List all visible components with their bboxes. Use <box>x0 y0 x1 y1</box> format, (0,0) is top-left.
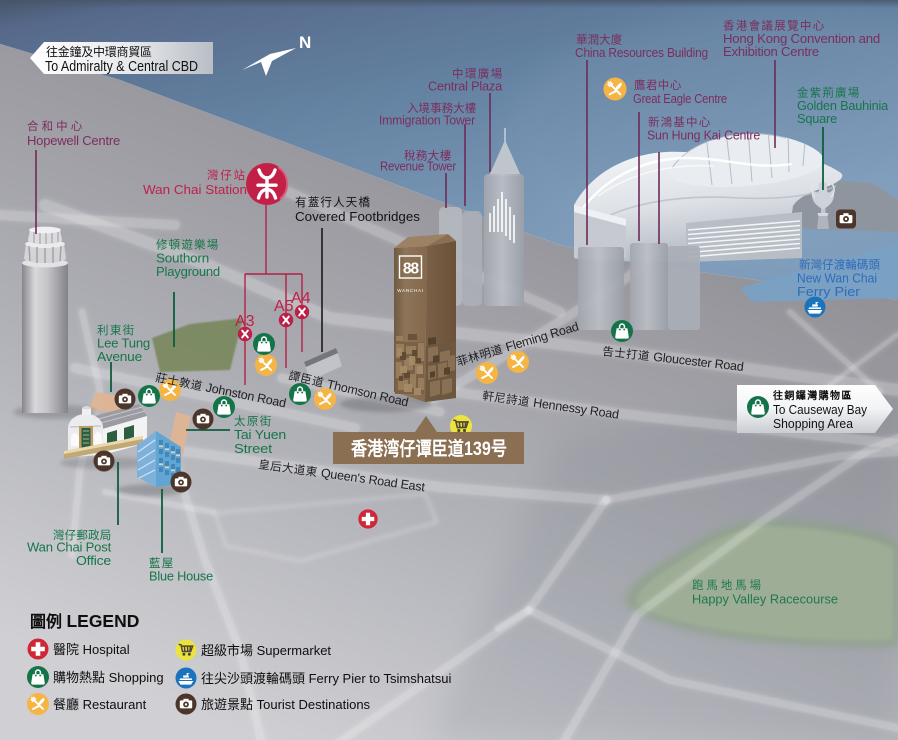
svg-text:Street: Street <box>234 441 273 456</box>
svg-text:Hopewell Centre: Hopewell Centre <box>27 133 120 148</box>
svg-text:超級市場 Supermarket: 超級市場 Supermarket <box>201 643 331 658</box>
svg-text:鷹君中心: 鷹君中心 <box>634 78 682 92</box>
svg-text:Playground: Playground <box>156 264 220 279</box>
svg-text:往銅鑼灣購物區: 往銅鑼灣購物區 <box>773 389 853 402</box>
svg-text:Office: Office <box>76 553 111 568</box>
svg-text:醫院 Hospital: 醫院 Hospital <box>53 642 130 657</box>
svg-text:A4: A4 <box>291 290 311 307</box>
svg-text:旅遊景點 Tourist Destinations: 旅遊景點 Tourist Destinations <box>201 697 371 712</box>
svg-text:新灣仔渡輪碼頭: 新灣仔渡輪碼頭 <box>799 258 881 272</box>
svg-text:Sun Hung Kai Centre: Sun Hung Kai Centre <box>647 128 760 143</box>
svg-text:WANCHAI: WANCHAI <box>397 288 423 293</box>
svg-text:有蓋行人天橋: 有蓋行人天橋 <box>295 195 371 209</box>
svg-text:Great Eagle Centre: Great Eagle Centre <box>633 91 727 106</box>
svg-text:購物熱點 Shopping: 購物熱點 Shopping <box>53 670 164 685</box>
svg-text:To Admiralty & Central CBD: To Admiralty & Central CBD <box>45 59 198 75</box>
svg-text:往金鐘及中環商貿區: 往金鐘及中環商貿區 <box>46 44 152 59</box>
svg-text:往尖沙頭渡輪碼頭 Ferry Pier to Tsimsha: 往尖沙頭渡輪碼頭 Ferry Pier to Tsimshatsui <box>201 671 452 686</box>
svg-text:Covered Footbridges: Covered Footbridges <box>295 209 421 224</box>
svg-text:跑馬地馬場: 跑馬地馬場 <box>692 578 762 592</box>
svg-text:Avenue: Avenue <box>97 349 142 364</box>
svg-text:N: N <box>299 33 311 52</box>
svg-text:Exhibition Centre: Exhibition Centre <box>723 44 819 59</box>
svg-text:香港湾仔谭臣道139号: 香港湾仔谭臣道139号 <box>350 437 507 460</box>
svg-text:Square: Square <box>797 111 837 126</box>
svg-text:88: 88 <box>403 261 420 278</box>
svg-text:Wan Chai Station: Wan Chai Station <box>143 182 247 197</box>
svg-text:Tai Yuen: Tai Yuen <box>234 427 286 442</box>
svg-text:圖例 LEGEND: 圖例 LEGEND <box>30 611 139 631</box>
svg-text:Ferry Pier: Ferry Pier <box>797 284 861 299</box>
svg-text:Shopping Area: Shopping Area <box>773 416 854 431</box>
svg-text:To Causeway Bay: To Causeway Bay <box>773 402 867 417</box>
svg-text:Happy Valley Racecourse: Happy Valley Racecourse <box>692 592 838 607</box>
svg-text:灣仔站: 灣仔站 <box>207 168 246 182</box>
svg-text:餐廳 Restaurant: 餐廳 Restaurant <box>53 697 147 712</box>
svg-text:A3: A3 <box>235 313 255 330</box>
svg-text:太原街: 太原街 <box>234 414 272 428</box>
svg-text:Blue House: Blue House <box>149 569 213 584</box>
svg-text:修頓遊樂場: 修頓遊樂場 <box>156 238 219 252</box>
svg-text:Central Plaza: Central Plaza <box>428 79 503 94</box>
svg-text:Revenue Tower: Revenue Tower <box>380 159 457 174</box>
svg-text:China Resources Building: China Resources Building <box>575 45 708 60</box>
svg-text:Immigration Tower: Immigration Tower <box>379 113 476 128</box>
